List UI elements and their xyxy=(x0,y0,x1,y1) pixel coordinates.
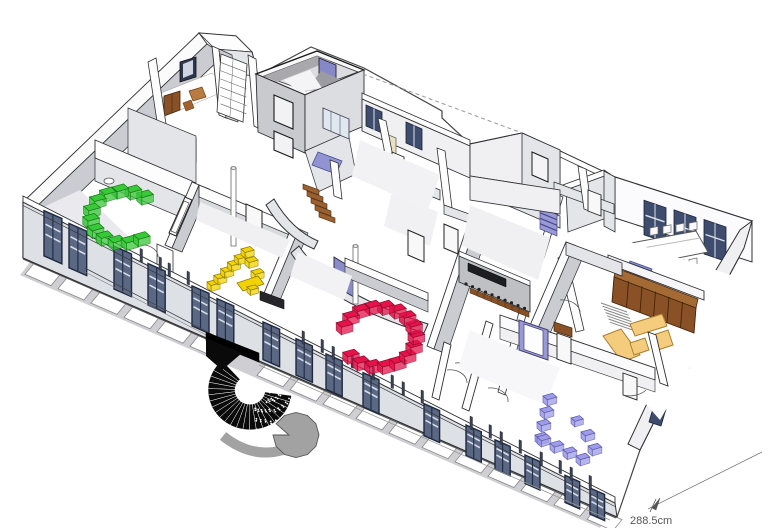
svg-text:288.5cm: 288.5cm xyxy=(630,515,672,527)
